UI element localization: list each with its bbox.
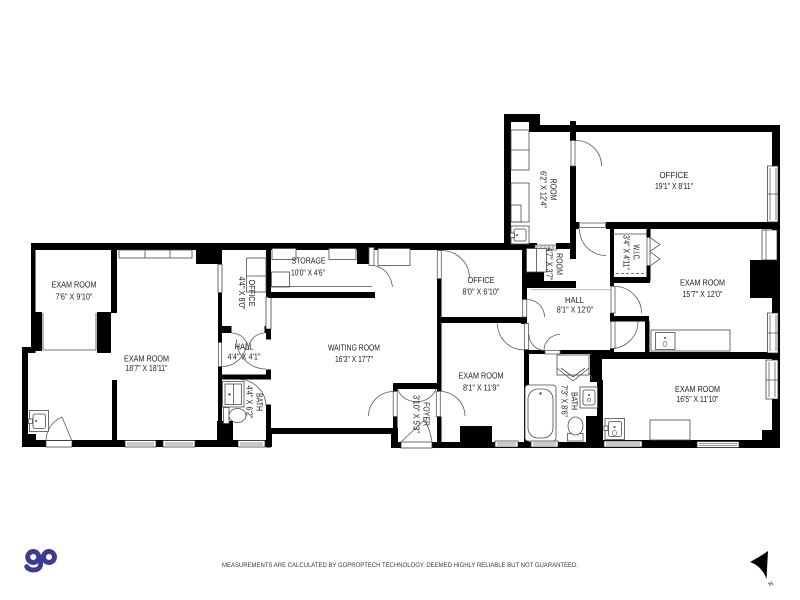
svg-text:EXAM ROOM: EXAM ROOM: [52, 280, 97, 290]
svg-text:OFFICE: OFFICE: [468, 275, 495, 285]
svg-text:3'10" X 5'3": 3'10" X 5'3": [412, 395, 422, 433]
svg-text:4'7" X 3'7": 4'7" X 3'7": [545, 248, 555, 281]
svg-text:8'0" X 6'10": 8'0" X 6'10": [463, 287, 500, 297]
svg-text:4'4" X 8'0": 4'4" X 8'0": [237, 277, 247, 310]
svg-text:ROOM: ROOM: [549, 179, 559, 201]
svg-text:EXAM ROOM: EXAM ROOM: [680, 278, 725, 288]
svg-text:EXAM ROOM: EXAM ROOM: [675, 384, 720, 394]
svg-text:8'1" X 12'0": 8'1" X 12'0": [557, 305, 594, 315]
svg-text:BATH: BATH: [255, 393, 265, 411]
svg-text:18'7" X 18'11": 18'7" X 18'11": [126, 363, 168, 373]
svg-text:HALL: HALL: [565, 295, 584, 305]
svg-text:OFFICE: OFFICE: [660, 170, 689, 180]
svg-text:4'4" X 6'2": 4'4" X 6'2": [245, 386, 255, 419]
svg-text:19'1" X 8'11": 19'1" X 8'11": [655, 181, 693, 191]
svg-text:BATH: BATH: [570, 392, 580, 410]
svg-text:WAITING ROOM: WAITING ROOM: [328, 343, 380, 353]
svg-text:3'4" X 4'11": 3'4" X 4'11": [622, 235, 632, 270]
svg-text:6'2" X 12'4": 6'2" X 12'4": [539, 171, 549, 208]
svg-text:EXAM ROOM: EXAM ROOM: [459, 371, 504, 381]
svg-text:8'1" X 11'9": 8'1" X 11'9": [463, 383, 499, 393]
svg-text:15'7" X 12'0": 15'7" X 12'0": [683, 289, 723, 299]
svg-text:7'3" X 8'6": 7'3" X 8'6": [560, 385, 570, 417]
svg-text:MEASUREMENTS ARE CALCULATED BY: MEASUREMENTS ARE CALCULATED BY GOPROPTEC…: [222, 562, 578, 569]
svg-text:W.I.C.: W.I.C.: [632, 245, 642, 261]
svg-text:10'0" X 4'6": 10'0" X 4'6": [291, 268, 325, 278]
svg-text:STORAGE: STORAGE: [292, 256, 326, 266]
svg-text:4'4" X 4'1": 4'4" X 4'1": [228, 352, 261, 362]
svg-text:7'6" X 9'10": 7'6" X 9'10": [56, 292, 93, 302]
svg-text:ROOM: ROOM: [555, 253, 565, 275]
svg-text:EXAM ROOM: EXAM ROOM: [124, 354, 169, 364]
svg-text:FOYER: FOYER: [422, 402, 432, 426]
svg-text:OFFICE: OFFICE: [247, 280, 257, 307]
svg-text:16'3" X 17'7": 16'3" X 17'7": [335, 354, 373, 364]
svg-text:HALL: HALL: [235, 342, 254, 352]
svg-text:16'5" X 11'10": 16'5" X 11'10": [677, 394, 719, 404]
